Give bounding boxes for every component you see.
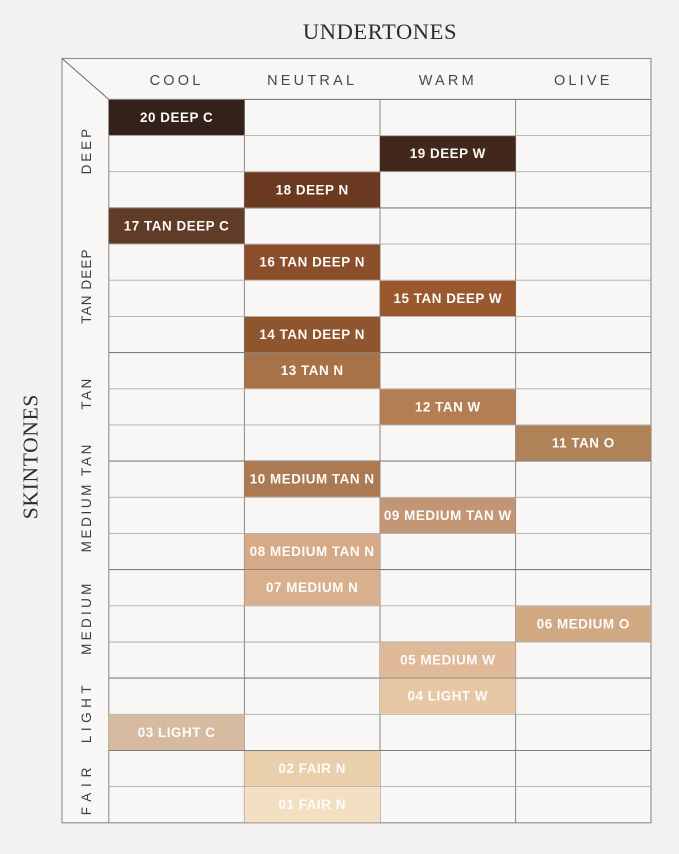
svg-text:DEEP: DEEP <box>79 126 94 174</box>
svg-text:07 MEDIUM N: 07 MEDIUM N <box>266 580 358 595</box>
svg-text:09 MEDIUM TAN W: 09 MEDIUM TAN W <box>384 508 512 523</box>
svg-text:14 TAN DEEP N: 14 TAN DEEP N <box>259 327 365 342</box>
svg-text:NEUTRAL: NEUTRAL <box>267 73 357 89</box>
svg-text:04 LIGHT W: 04 LIGHT W <box>407 689 488 704</box>
svg-text:06 MEDIUM O: 06 MEDIUM O <box>537 616 630 631</box>
svg-text:UNDERTONES: UNDERTONES <box>303 19 457 44</box>
svg-text:18 DEEP N: 18 DEEP N <box>276 182 349 197</box>
svg-text:16 TAN DEEP N: 16 TAN DEEP N <box>259 255 365 270</box>
svg-text:MEDIUM: MEDIUM <box>79 580 94 655</box>
svg-text:08 MEDIUM TAN N: 08 MEDIUM TAN N <box>250 544 375 559</box>
svg-text:05 MEDIUM W: 05 MEDIUM W <box>400 653 495 668</box>
svg-text:WARM: WARM <box>419 73 477 89</box>
svg-text:19 DEEP W: 19 DEEP W <box>410 146 486 161</box>
svg-text:OLIVE: OLIVE <box>554 73 613 89</box>
svg-text:15 TAN DEEP W: 15 TAN DEEP W <box>394 291 503 306</box>
svg-text:11 TAN O: 11 TAN O <box>552 436 615 451</box>
svg-text:03 LIGHT C: 03 LIGHT C <box>138 725 216 740</box>
svg-text:17 TAN DEEP C: 17 TAN DEEP C <box>124 219 230 234</box>
svg-text:TAN DEEP: TAN DEEP <box>79 248 94 323</box>
svg-text:01 FAIR N: 01 FAIR N <box>278 797 345 812</box>
svg-text:13 TAN N: 13 TAN N <box>281 363 344 378</box>
svg-text:20 DEEP C: 20 DEEP C <box>140 110 213 125</box>
svg-text:12 TAN W: 12 TAN W <box>415 399 481 414</box>
svg-text:TAN: TAN <box>79 376 94 409</box>
svg-text:10 MEDIUM TAN N: 10 MEDIUM TAN N <box>250 472 375 487</box>
svg-text:LIGHT: LIGHT <box>79 681 94 743</box>
svg-text:COOL: COOL <box>150 73 204 89</box>
svg-text:02 FAIR N: 02 FAIR N <box>278 761 345 776</box>
svg-text:SKINTONES: SKINTONES <box>19 394 43 519</box>
svg-text:MEDIUM TAN: MEDIUM TAN <box>79 442 94 552</box>
svg-text:FAIR: FAIR <box>79 762 94 816</box>
